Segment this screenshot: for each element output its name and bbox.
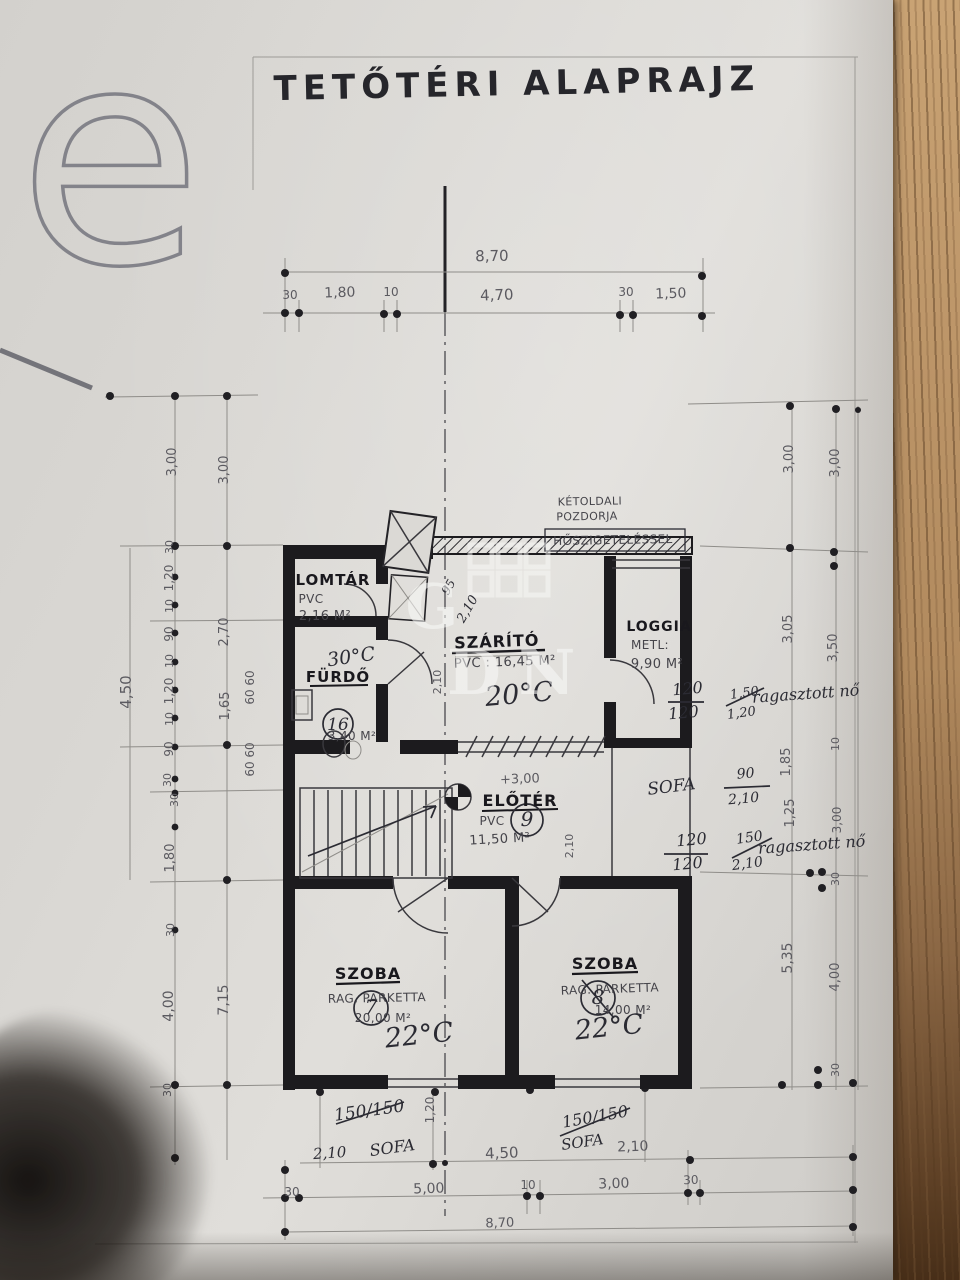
- dim-label: 3,00: [217, 456, 232, 485]
- hw-label: 120: [675, 829, 707, 851]
- hw-label: SOFA: [368, 1135, 416, 1160]
- dim-label: 2,10: [617, 1138, 649, 1155]
- wm-label: N: [519, 636, 576, 709]
- dim-label: 3,50: [826, 634, 841, 663]
- sub-label: PVC: [479, 814, 504, 828]
- dim-label: 10: [163, 599, 176, 613]
- sub-label: POZDORJA: [556, 509, 618, 523]
- hw-label: 22°C: [382, 1017, 455, 1055]
- hw-label: 150/150: [561, 1101, 630, 1131]
- hw-label: SOFA: [646, 774, 696, 800]
- hw-label: 2,10: [311, 1143, 347, 1163]
- dim-label: 3,05: [781, 615, 796, 644]
- hw-label: 120: [671, 853, 703, 875]
- dim-label: 1,20: [162, 678, 176, 705]
- dim-label: 8,70: [485, 1216, 514, 1232]
- dim-label: 30: [284, 1185, 299, 1199]
- hw-label: 90: [736, 765, 755, 782]
- hw-label: ragasztott nő: [751, 680, 861, 707]
- hw-label: 2,10: [726, 790, 760, 809]
- dim-label: 1,65: [218, 692, 233, 721]
- dim-label: 1,20: [162, 565, 176, 592]
- dim-label: 10: [520, 1178, 535, 1192]
- dim-label: 60: [243, 761, 257, 776]
- room-szoba-right: SZOBA: [572, 954, 638, 973]
- hw-label: 16: [327, 715, 349, 735]
- dim-label: 4,00: [161, 990, 177, 1021]
- page-title: TETŐTÉRI ALAPRAJZ: [273, 58, 760, 109]
- dim-label: 1,80: [163, 844, 178, 873]
- floor-plan-photo: e TETŐTÉRI ALAPRAJZ: [0, 0, 960, 1280]
- sub-label: PVC: [298, 592, 323, 606]
- dim-label: 30: [164, 923, 177, 937]
- room-lomtar: LOMTÁR: [296, 570, 371, 589]
- dim-label: 4,00: [828, 963, 843, 992]
- dim-label: 30: [163, 540, 176, 554]
- dim-label: 10: [829, 737, 842, 751]
- dim-label: 5,00: [413, 1180, 445, 1197]
- level-mark: +3,00: [500, 771, 540, 787]
- corner-logo-letter: e: [18, 0, 203, 333]
- room-szoba-left: SZOBA: [335, 964, 401, 983]
- wm-label: G: [406, 570, 459, 643]
- room-loggia: LOGGIA: [626, 619, 691, 635]
- dim-label: 10: [163, 712, 176, 726]
- sub-label: 9,90 M²: [631, 657, 683, 672]
- sub-label: 11,50 M²: [469, 830, 531, 848]
- stairs: [300, 788, 452, 878]
- dim-label: 4,50: [117, 675, 135, 708]
- dim-label: 30: [282, 288, 297, 302]
- dim-label: 2,70: [217, 618, 232, 647]
- hw-label: ragasztott nő: [757, 831, 867, 858]
- dim-label: 30: [161, 773, 174, 787]
- dim-label: 1,20: [423, 1097, 437, 1124]
- dim-label: 3,00: [598, 1175, 630, 1192]
- sub-label: 2,16 M²: [299, 609, 351, 624]
- dim-label: 30: [829, 872, 842, 886]
- dim-label: 60: [243, 742, 257, 757]
- dim-label: 7,15: [216, 984, 232, 1015]
- dim-label: 3,00: [782, 445, 797, 474]
- dim-label: 90: [162, 626, 176, 641]
- dim-label: 4,50: [485, 1143, 519, 1162]
- dim-label: 10: [163, 654, 176, 668]
- dim-label: 90: [162, 741, 176, 756]
- hw-label: 1,20: [726, 704, 757, 723]
- dim-label: 5,35: [780, 942, 796, 973]
- dim-label: 1,50: [655, 285, 687, 302]
- hw-label: 9: [521, 807, 534, 831]
- photo-bottom-shadow: [0, 1232, 893, 1280]
- dim-label: 4,70: [480, 285, 514, 304]
- dim-label: 3,00: [830, 807, 844, 834]
- sub-label: HŐSZIGETELÉSSEL: [553, 531, 673, 548]
- dim-label: 3,00: [828, 449, 843, 478]
- dim-label: 2,10: [431, 670, 444, 695]
- dim-label: 60: [243, 670, 257, 685]
- dim-label: 10: [383, 285, 398, 299]
- hw-label: 150/150: [333, 1096, 406, 1126]
- dim-label: 1,85: [779, 748, 794, 777]
- dim-label: 3,00: [165, 448, 180, 477]
- dim-label: 2,10: [563, 834, 576, 859]
- sub-label: KÉTOLDALI: [558, 494, 623, 508]
- hw-label: 7: [365, 995, 378, 1019]
- dim-label: 30: [618, 285, 633, 299]
- hw-label: 8: [592, 985, 605, 1009]
- hw-label: 120: [671, 678, 703, 700]
- hw-label: 120: [667, 702, 699, 724]
- dim-label: 1,80: [324, 284, 356, 301]
- dim-label: 30: [829, 1063, 842, 1077]
- dim-label: 30: [683, 1173, 699, 1188]
- dim-label: 1,25: [783, 799, 798, 828]
- wm-label: D: [447, 636, 501, 709]
- hw-label: 22°C: [572, 1009, 645, 1047]
- dim-label: 30: [168, 793, 181, 807]
- corner-logo-stroke: [0, 350, 92, 388]
- dim-label: 60: [243, 689, 257, 704]
- sub-label: RAG. PARKETTA: [561, 980, 660, 997]
- dim-label: 8,70: [475, 247, 509, 266]
- level-marker: [445, 784, 471, 810]
- sub-label: METL:: [631, 638, 669, 652]
